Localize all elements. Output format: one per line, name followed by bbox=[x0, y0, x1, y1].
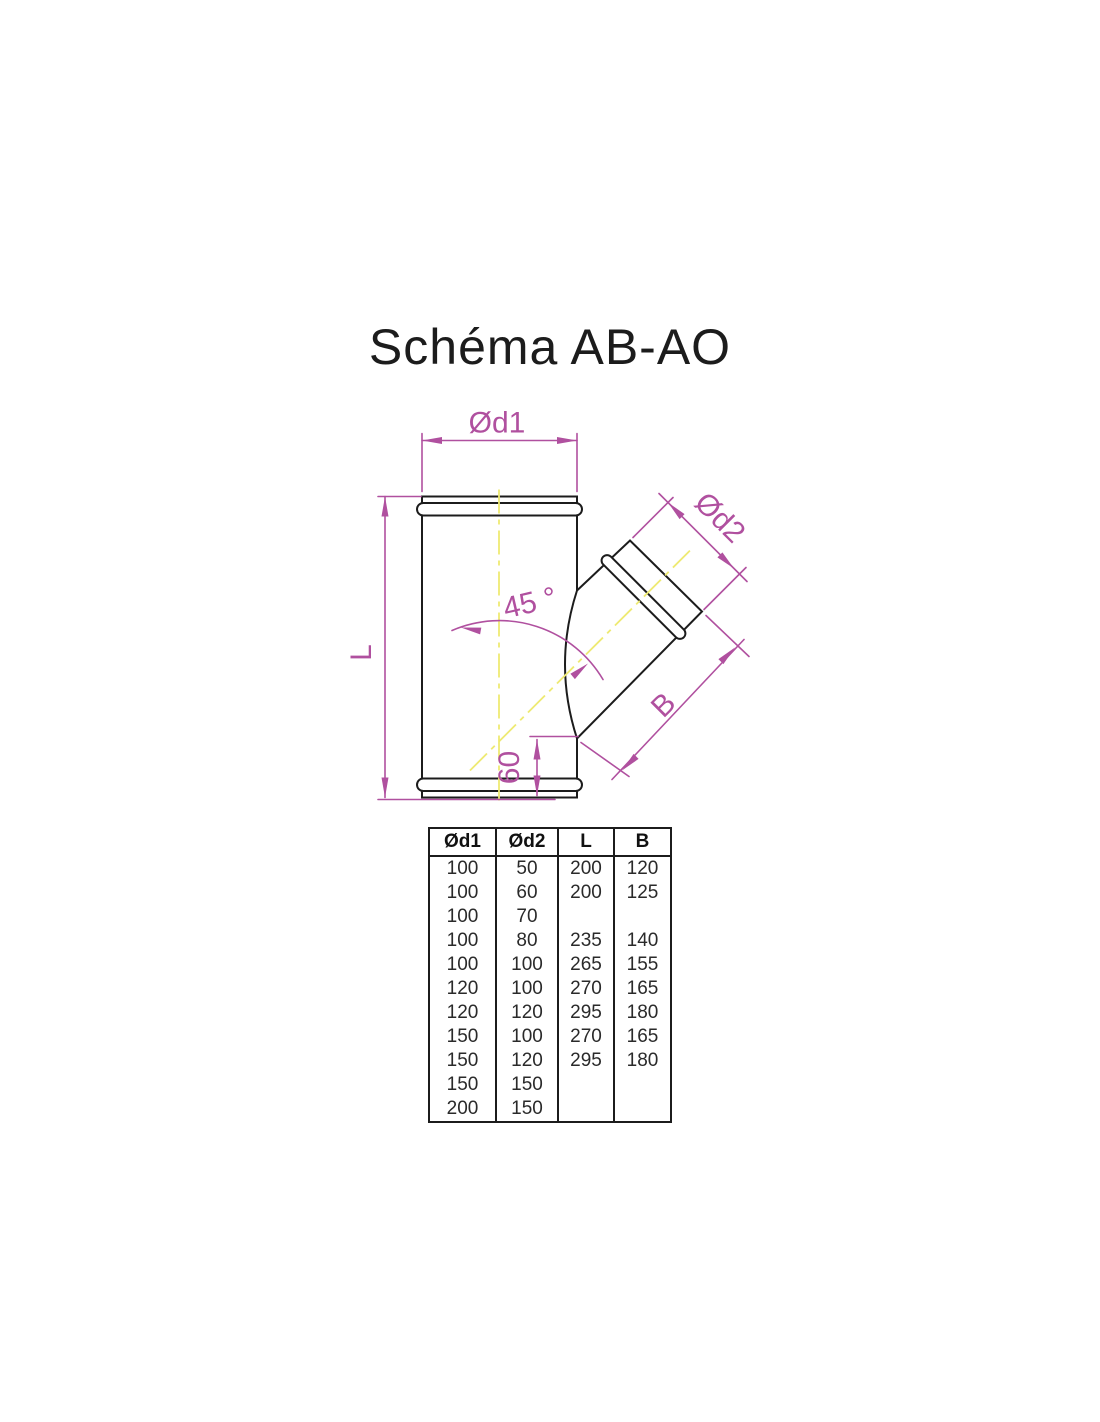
table-cell: 270 bbox=[558, 977, 614, 1001]
table-row: 10060200125 bbox=[429, 881, 671, 905]
column-header-L: L bbox=[558, 828, 614, 856]
table-cell: 150 bbox=[429, 1073, 496, 1097]
column-header-d2: Ød2 bbox=[496, 828, 558, 856]
table-cell: 100 bbox=[496, 1025, 558, 1049]
table-cell bbox=[558, 905, 614, 929]
table-cell: 120 bbox=[429, 977, 496, 1001]
table-cell: 180 bbox=[614, 1049, 671, 1073]
table-cell: 200 bbox=[558, 881, 614, 905]
table-cell: 235 bbox=[558, 929, 614, 953]
table-row: 200150 bbox=[429, 1097, 671, 1122]
part-outline bbox=[417, 497, 702, 798]
table-row: 10080235140 bbox=[429, 929, 671, 953]
table-cell: 295 bbox=[558, 1001, 614, 1025]
column-header-d1: Ød1 bbox=[429, 828, 496, 856]
table-cell: 150 bbox=[496, 1097, 558, 1122]
table-cell: 150 bbox=[429, 1049, 496, 1073]
table-cell: 100 bbox=[429, 905, 496, 929]
label-L: L bbox=[345, 644, 378, 661]
table-cell: 120 bbox=[496, 1001, 558, 1025]
table-cell bbox=[558, 1097, 614, 1122]
table-row: 150100270165 bbox=[429, 1025, 671, 1049]
table-cell: 155 bbox=[614, 953, 671, 977]
table-cell: 120 bbox=[496, 1049, 558, 1073]
table-cell: 60 bbox=[496, 881, 558, 905]
table-cell: 100 bbox=[429, 953, 496, 977]
table-cell: 70 bbox=[496, 905, 558, 929]
table-cell: 295 bbox=[558, 1049, 614, 1073]
table-cell: 150 bbox=[429, 1025, 496, 1049]
table-row: 120100270165 bbox=[429, 977, 671, 1001]
page-title: Schéma AB-AO bbox=[0, 318, 1100, 376]
table-cell: 100 bbox=[496, 953, 558, 977]
table-row: 150150 bbox=[429, 1073, 671, 1097]
label-B: B bbox=[645, 686, 682, 723]
schematic-page: Schéma AB-AO bbox=[0, 0, 1100, 1422]
table-cell: 265 bbox=[558, 953, 614, 977]
table-cell: 120 bbox=[614, 856, 671, 881]
table-cell: 165 bbox=[614, 1025, 671, 1049]
table-cell bbox=[558, 1073, 614, 1097]
table-row: 10070 bbox=[429, 905, 671, 929]
table-cell: 200 bbox=[429, 1097, 496, 1122]
table-row: 150120295180 bbox=[429, 1049, 671, 1073]
table-cell: 120 bbox=[429, 1001, 496, 1025]
table-cell: 200 bbox=[558, 856, 614, 881]
table-cell bbox=[614, 1073, 671, 1097]
table-row: 10050200120 bbox=[429, 856, 671, 881]
table-cell bbox=[614, 1097, 671, 1122]
table-header-row: Ød1 Ød2 L B bbox=[429, 828, 671, 856]
table-cell: 100 bbox=[496, 977, 558, 1001]
table-body: 1005020012010060200125100701008023514010… bbox=[429, 856, 671, 1122]
table-cell bbox=[614, 905, 671, 929]
column-header-B: B bbox=[614, 828, 671, 856]
table-cell: 100 bbox=[429, 929, 496, 953]
label-d1: Ød1 bbox=[469, 407, 526, 440]
table-cell: 165 bbox=[614, 977, 671, 1001]
table-row: 120120295180 bbox=[429, 1001, 671, 1025]
table-cell: 150 bbox=[496, 1073, 558, 1097]
table-cell: 100 bbox=[429, 881, 496, 905]
table-cell: 80 bbox=[496, 929, 558, 953]
table-cell: 100 bbox=[429, 856, 496, 881]
table-cell: 50 bbox=[496, 856, 558, 881]
table-cell: 125 bbox=[614, 881, 671, 905]
table-cell: 270 bbox=[558, 1025, 614, 1049]
table-row: 100100265155 bbox=[429, 953, 671, 977]
table-cell: 140 bbox=[614, 929, 671, 953]
label-d2: Ød2 bbox=[688, 486, 751, 549]
dimension-table: Ød1 Ød2 L B 1005020012010060200125100701… bbox=[428, 827, 672, 1123]
pipe-branch-drawing: Ød1 L Ød2 B 45 ° 60 bbox=[340, 395, 780, 825]
label-offset-60: 60 bbox=[493, 751, 526, 784]
table-cell: 180 bbox=[614, 1001, 671, 1025]
